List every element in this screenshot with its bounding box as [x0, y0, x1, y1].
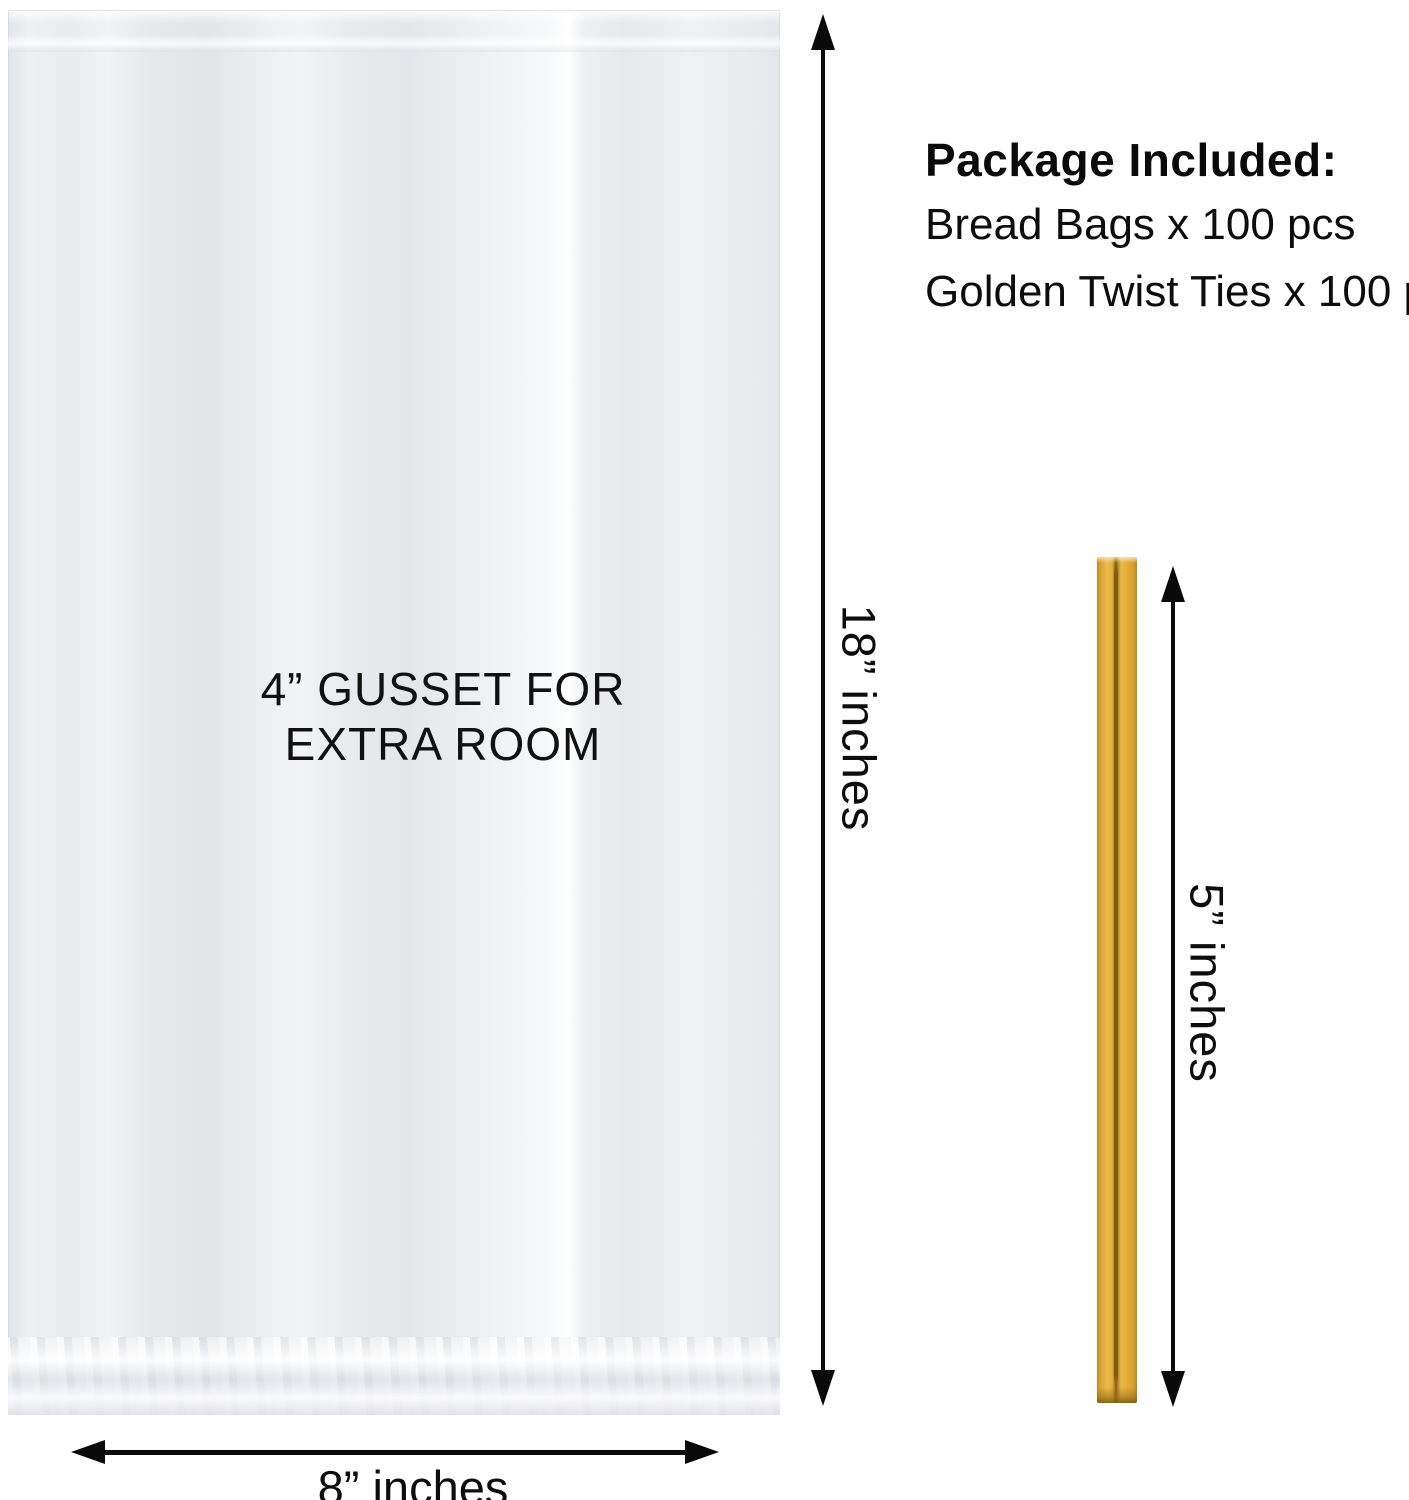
arrow-right-head-icon	[685, 1440, 719, 1464]
arrow-line	[821, 50, 825, 1370]
bag-height-label: 18” inches	[832, 605, 887, 832]
bag-bottom-seam	[8, 1337, 780, 1415]
bag-gusset-label-line1: 4” GUSSET FOR	[261, 662, 626, 717]
package-included-block: Package Included: Bread Bags x 100 pcs G…	[925, 133, 1409, 321]
arrow-line	[105, 1450, 685, 1455]
golden-twist-tie	[1097, 557, 1137, 1403]
bag-gusset-label-line2: EXTRA ROOM	[261, 717, 626, 772]
arrow-line	[1171, 602, 1175, 1371]
bread-bag-product-diagram: 4” GUSSET FOR EXTRA ROOM 18” inches 8” i…	[0, 0, 1409, 1500]
bag-width-label: 8” inches	[318, 1460, 509, 1500]
bag-gusset-label: 4” GUSSET FOR EXTRA ROOM	[261, 662, 626, 772]
arrow-down-head-icon	[811, 1370, 835, 1406]
package-item-twist-ties: Golden Twist Ties x 100 pcs	[925, 262, 1409, 321]
bread-bag: 4” GUSSET FOR EXTRA ROOM	[8, 10, 780, 1415]
arrow-down-head-icon	[1161, 1371, 1185, 1407]
arrow-up-head-icon	[811, 14, 835, 50]
package-item-bread-bags: Bread Bags x 100 pcs	[925, 195, 1409, 254]
twist-tie-wire-crease	[1114, 564, 1118, 1383]
arrow-up-head-icon	[1161, 566, 1185, 602]
tie-length-label: 5” inches	[1180, 883, 1235, 1083]
arrow-left-head-icon	[71, 1440, 105, 1464]
package-included-heading: Package Included:	[925, 133, 1409, 187]
